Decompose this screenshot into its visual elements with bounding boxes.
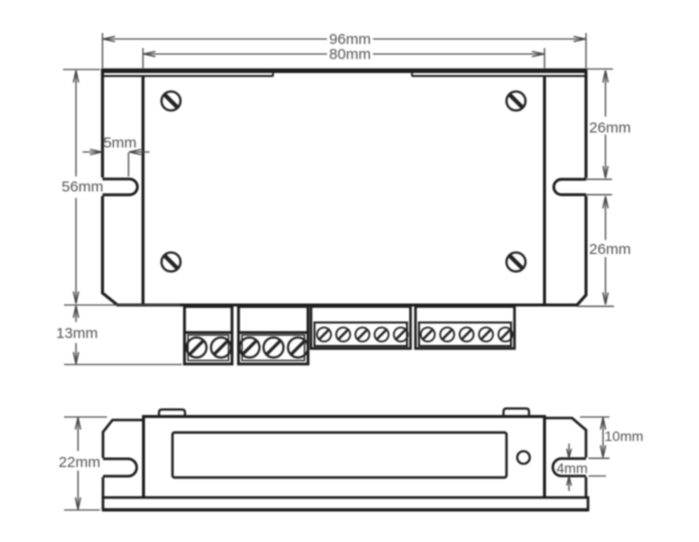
svg-text:22mm: 22mm: [59, 454, 101, 471]
svg-text:10mm: 10mm: [605, 428, 644, 444]
svg-text:26mm: 26mm: [589, 120, 631, 137]
svg-text:13mm: 13mm: [56, 325, 98, 342]
svg-text:80mm: 80mm: [329, 46, 371, 63]
svg-text:26mm: 26mm: [589, 241, 631, 258]
svg-text:56mm: 56mm: [62, 179, 104, 196]
svg-text:4mm: 4mm: [557, 460, 588, 476]
svg-text:5mm: 5mm: [103, 135, 136, 152]
